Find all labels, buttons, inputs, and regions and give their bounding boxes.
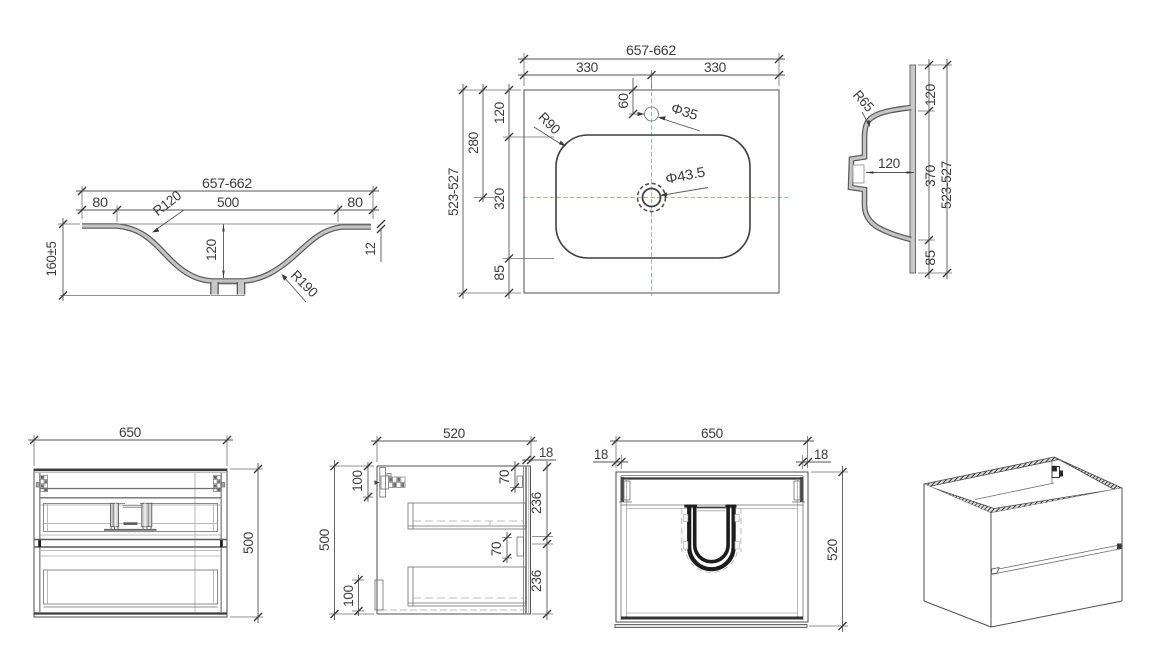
svg-text:120: 120 — [922, 84, 938, 106]
svg-text:18: 18 — [594, 446, 608, 462]
svg-text:120: 120 — [203, 239, 219, 261]
svg-text:70: 70 — [488, 541, 504, 556]
svg-text:330: 330 — [576, 59, 598, 75]
svg-text:80: 80 — [347, 194, 363, 210]
svg-text:18: 18 — [814, 446, 828, 462]
svg-text:520: 520 — [824, 539, 840, 561]
svg-text:236: 236 — [528, 570, 544, 592]
svg-text:500: 500 — [240, 532, 256, 554]
svg-text:100: 100 — [340, 585, 356, 607]
svg-text:320: 320 — [491, 188, 507, 210]
svg-text:80: 80 — [92, 194, 108, 210]
svg-text:236: 236 — [528, 492, 544, 514]
svg-text:280: 280 — [465, 132, 481, 154]
svg-text:657-662: 657-662 — [626, 42, 677, 58]
svg-text:160±5: 160±5 — [43, 241, 59, 276]
svg-text:657-662: 657-662 — [202, 175, 253, 191]
svg-text:520: 520 — [443, 425, 465, 441]
svg-text:500: 500 — [217, 194, 239, 210]
svg-text:18: 18 — [539, 444, 553, 460]
svg-text:500: 500 — [316, 529, 332, 551]
svg-text:120: 120 — [878, 155, 900, 171]
svg-text:60: 60 — [615, 93, 631, 109]
svg-text:650: 650 — [119, 424, 141, 440]
svg-text:650: 650 — [701, 425, 723, 441]
svg-text:12: 12 — [362, 242, 378, 255]
svg-text:523-527: 523-527 — [938, 161, 954, 209]
svg-text:120: 120 — [491, 102, 507, 124]
svg-text:370: 370 — [922, 165, 938, 187]
svg-text:85: 85 — [491, 265, 507, 281]
svg-text:100: 100 — [349, 470, 365, 492]
svg-text:85: 85 — [922, 250, 938, 266]
svg-text:70: 70 — [496, 469, 512, 484]
svg-text:523-527: 523-527 — [445, 168, 461, 216]
svg-text:330: 330 — [704, 59, 726, 75]
